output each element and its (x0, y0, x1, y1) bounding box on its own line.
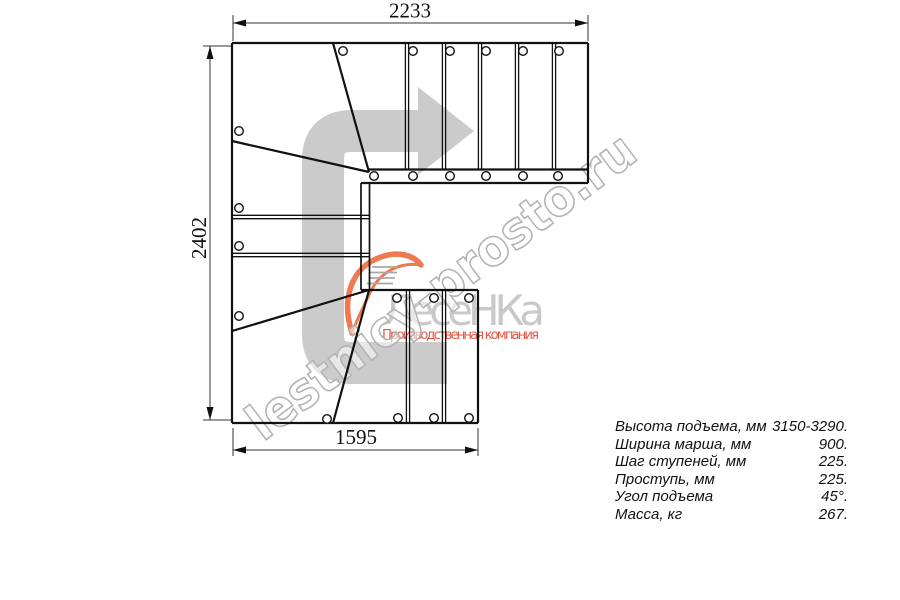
spec-label: Проступь, мм (615, 471, 715, 489)
spec-label: Шаг ступеней, мм (615, 453, 746, 471)
spec-value: 3150-3290. (772, 418, 848, 436)
dimension-top-label: 2233 (389, 0, 431, 23)
spec-label: Угол подъема (615, 488, 713, 506)
spec-row-tread: Проступь, мм 225. (615, 471, 848, 489)
spec-value: 225. (819, 453, 848, 471)
spec-row-flight-width: Ширина марша, мм 900. (615, 436, 848, 454)
spec-row-step-pitch: Шаг ступеней, мм 225. (615, 453, 848, 471)
dimension-bottom-label: 1595 (335, 425, 377, 449)
spec-value: 267. (819, 506, 848, 524)
spec-label: Ширина марша, мм (615, 436, 751, 454)
spec-value: 225. (819, 471, 848, 489)
spec-value: 900. (819, 436, 848, 454)
spec-row-mass: Масса, кг 267. (615, 506, 848, 524)
watermark-text: lestnicy-prosto.ru (235, 121, 647, 451)
spec-row-angle: Угол подъема 45°. (615, 488, 848, 506)
specs-table: Высота подъема, мм 3150-3290. Ширина мар… (615, 418, 848, 524)
spec-label: Высота подъема, мм (615, 418, 767, 436)
staircase-drawing-page: ЛесеНКа Производственная компания lestni… (0, 0, 900, 600)
dimension-left-label: 2402 (187, 217, 211, 259)
spec-label: Масса, кг (615, 506, 682, 524)
dimension-left: 2402 (187, 46, 231, 420)
dimension-top: 2233 (233, 0, 588, 41)
spec-value: 45°. (821, 488, 848, 506)
spec-row-height: Высота подъема, мм 3150-3290. (615, 418, 848, 436)
